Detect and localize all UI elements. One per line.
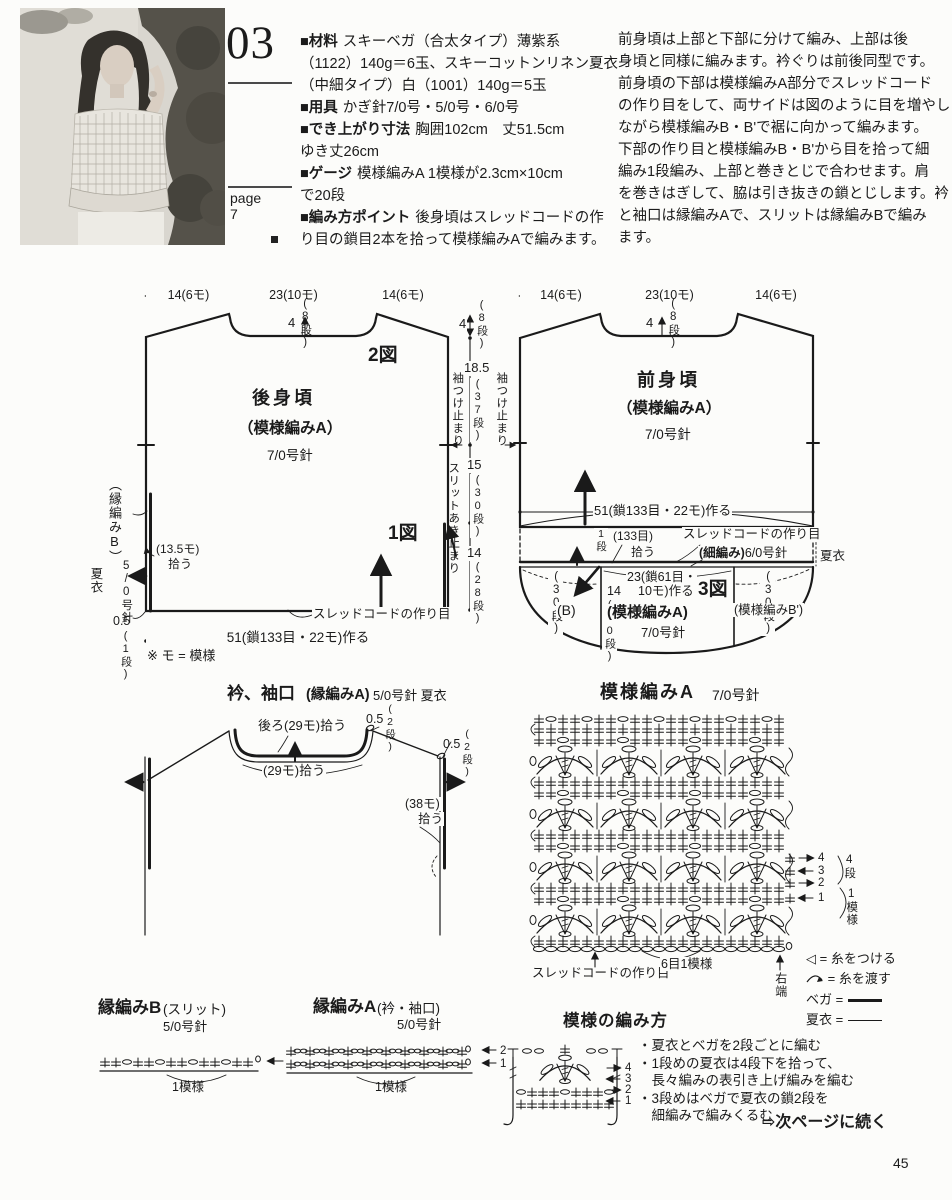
instructions-paragraph: 前身頃は上部と下部に分けて編み、上部は後 身頃と同様に編みます。衿ぐりは前後同型… [618,29,950,249]
instructions-line: と袖口は縁編みAで、スリットは縁編みBで編み [618,205,950,227]
front-piece-name: 前身頃 [637,370,700,391]
slit-stop: スリットあき止まり [446,462,459,575]
chart-row4: 4 [818,852,824,864]
edgingA-row1: 1 [500,1058,506,1070]
back-pickup-word: 拾う [167,558,193,572]
collar-corner2-rows: (2段) [461,728,473,779]
front-lowmid-cast2: 10モ)作る [637,584,695,598]
back-piece-name: 後身頃 [252,388,315,409]
collar-corner2: 0.5 [443,737,460,751]
collar-title-hook: 5/0号針 夏衣 [373,689,447,704]
divider-line-top [228,82,292,84]
front-lowmid-cast1: 23(鎖61目・ [626,570,697,584]
instructions-line: 前身頃の下部は模様編みA部分でスレッドコード [618,73,950,95]
collar-corner1: 0.5 [366,712,383,726]
collar-back-pickup: 後ろ(29モ)拾う [257,719,347,734]
edgingB-title: 縁編みB [98,998,161,1018]
collar-title: 衿、袖口 [227,684,295,704]
figure1-label: 1図 [388,523,418,545]
chart-rows-label: 4段 [842,854,855,880]
back-corner-height: 0.5 [113,614,130,628]
divider-line-bottom [228,186,292,188]
howto-note-line: ・1段めの夏衣は4段下を拾って、 [638,1055,854,1073]
legend-natsui-yarn: 夏衣 = [806,1009,882,1028]
mid-dim4: 14 [466,546,482,561]
legend-carry-yarn: = 糸を渡す [806,968,891,987]
back-hook: 7/0号針 [267,448,313,464]
back-edge-yarn: 夏衣 [88,567,102,594]
chart-repeat-note: 6目1模様 [660,957,713,971]
collar-sleeve-pickup2: 拾う [417,812,444,826]
howto-note-line: ・3段めはベガで夏衣の鎖2段を [638,1090,854,1108]
front-dim-right: 14(6モ) [737,288,815,302]
collar-corner1-rows: (2段) [384,703,396,754]
section-square-bullet [271,236,278,243]
mid-dim2: 18.5 [463,361,490,376]
sleeve-stop-left: 袖つけ止まり [450,372,463,447]
front-cast-on: 51(鎖133目・22モ)作る [593,504,732,519]
back-corner-rows: (1段) [119,630,132,681]
attach-yarn-icon: ◁ [806,951,816,966]
figure3-label: 3図 [697,579,729,601]
edgingA-row2: 2 [500,1045,506,1057]
legend-attach-yarn: ◁ = 糸をつける [806,948,896,967]
back-neck-depth: 4 [287,316,296,331]
continue-arrow-icon: ⇨ [762,1114,775,1131]
chart-row2: 2 [818,877,824,889]
materials-block: ■材料スキーベガ（合太タイプ）薄紫系 （1122）140g＝6玉、スキーコットン… [300,31,618,251]
natsui-line-swatch [848,1020,882,1021]
mid-dim1: 4 [458,317,467,332]
materials-line: ■ゲージ模様編みA 1模様が2.3cm×10cm [300,163,618,185]
front-lowleft-label: (B) [556,602,577,618]
howto-notes: ・夏衣とベガを2段ごとに編む ・1段めの夏衣は4段下を拾って、 長々編みの表引き… [638,1037,854,1125]
front-lowmid-hook: 7/0号針 [640,626,686,641]
vega-line-swatch [848,999,882,1002]
instructions-line: 編み1段編み、上部と巻きとじで合わせます。肩 [618,161,950,183]
collar-sleeve-pickup: (38モ) [404,797,441,811]
instructions-line: ながら模様編みB・B'で裾に向かって編みます。 [618,117,950,139]
front-yarn: 夏衣 [820,549,845,563]
instructions-line: ます。 [618,227,950,249]
back-cast-on: 51(鎖133目・22モ)作る [146,630,450,646]
front-pickup-sts: (133目) [612,530,654,544]
howto-note-line: ・夏衣とベガを2段ごとに編む [638,1037,854,1055]
instructions-line: を巻きはぎして、脇は引き抜きの鎖とじします。衿 [618,183,950,205]
instructions-line: 身頃と同様に編みます。衿ぐりは前後同型です。 [618,51,950,73]
materials-line: ■編み方ポイント後身頃はスレッドコードの作 [300,207,618,229]
magazine-page: 03 page 7 ■材料スキーベガ（合太タイプ）薄紫系 （1122）140g＝… [0,0,952,1200]
back-edge-stitch: （縁編みB） [106,478,121,564]
back-dim-left: 14(6モ) [146,288,231,302]
page-number: 45 [893,1155,909,1171]
front-neck-rows: (8段) [666,298,679,350]
instructions-line: の作り目をして、両サイドは図のように目を増やし [618,95,950,117]
materials-line: で20段 [300,185,618,207]
mid-dim3: 15 [466,458,482,473]
edgingA-hook: 5/0号針 [397,1018,441,1033]
chart-title: 模様編みA [600,682,695,703]
chart-hook: 7/0号針 [712,687,759,703]
sleeve-stop-right: 袖つけ止まり [494,372,507,447]
collar-title-stitch: (縁編みA) [306,687,370,704]
front-neck-depth: 4 [645,316,654,331]
mid-dim3-rows: (30段) [470,474,485,538]
pattern-number: 03 [226,16,275,70]
edgingB-repeat: 1模様 [172,1080,204,1094]
materials-line: ゆき丈26cm [300,141,618,163]
front-pickup-word: 拾う [630,546,656,560]
chart-repeat-label: 1模様 [844,888,857,926]
edgingA-subtitle: (衿・袖口) [377,1001,440,1017]
carry-yarn-icon [806,973,824,984]
edgingA-title: 縁編みA [313,997,376,1017]
page-ref-value: 7 [230,206,238,222]
edgingB-hook: 5/0号針 [163,1020,207,1035]
materials-line: ■用具かぎ針7/0号・5/0号・6/0号 [300,97,618,119]
front-cord-note: スレッドコードの作り目 [682,527,822,541]
front-pickup-rows: 1段 [594,528,608,553]
chart-row3: 3 [818,865,824,877]
front-lowmid-height: 14 [606,584,622,598]
abbrev-note: ※ モ = 模様 [147,649,215,664]
instructions-line: 前身頃は上部と下部に分けて編み、上部は後 [618,29,950,51]
chart-right-edge: 右端 [773,972,787,998]
model-photo-illustration [20,8,225,245]
legend-vega-yarn: ベガ = [806,989,882,1008]
front-stitch: （模様編みA） [617,400,721,418]
materials-line: （中細タイプ）白（1001）140g＝5玉 [300,75,618,97]
instructions-line: 下部の作り目と模様編みB・B'から目を拾って細 [618,139,950,161]
front-lowmid-stitch: (模様編みA) [606,604,689,621]
figure2-label: 2図 [368,345,398,367]
chart-row1: 1 [818,892,824,904]
howto-row1: 1 [625,1095,631,1107]
back-dim-right: 14(6モ) [356,288,450,302]
chart-cord-note: スレッドコードの作り目 [532,966,670,980]
front-lowright-label: (模様編みB') [733,603,804,617]
continue-next-page: ⇨次ページに続く [762,1114,887,1132]
model-photo [20,8,225,245]
back-stitch: （模様編みA） [238,420,342,438]
front-sc-note: (細編み)6/0号針 [698,546,788,560]
edgingA-repeat: 1模様 [375,1080,407,1094]
edgingB-subtitle: (スリット) [163,1002,226,1018]
mid-dim2-rows: (37段) [470,378,485,442]
materials-line: ■でき上がり寸法胸囲102cm 丈51.5cm [300,119,618,141]
howto-title: 模様の編み方 [563,1012,668,1031]
front-hook: 7/0号針 [645,427,691,443]
mid-dim4-rows: (28段) [470,561,485,625]
page-ref-label: page [230,190,261,206]
howto-note-line: 長々編みの表引き上げ編みを編む [638,1072,854,1090]
back-dim-mid: 23(10モ) [229,288,358,302]
mid-dim1-rows: (8段) [474,299,489,350]
front-dim-left: 14(6モ) [520,288,602,302]
materials-line: ■材料スキーベガ（合太タイプ）薄紫系 [300,31,618,53]
back-pickup-sts: (13.5モ) [155,543,200,557]
materials-line: り目の鎖目2本を拾って模様編みAで編みます。 [300,229,618,251]
back-neck-rows: (8段) [298,298,311,350]
materials-line: （1122）140g＝6玉、スキーコットンリネン夏衣 [300,53,618,75]
back-cord-note: スレッドコードの作り目 [312,607,452,621]
collar-neck-pickup: (29モ)拾う [262,764,326,779]
